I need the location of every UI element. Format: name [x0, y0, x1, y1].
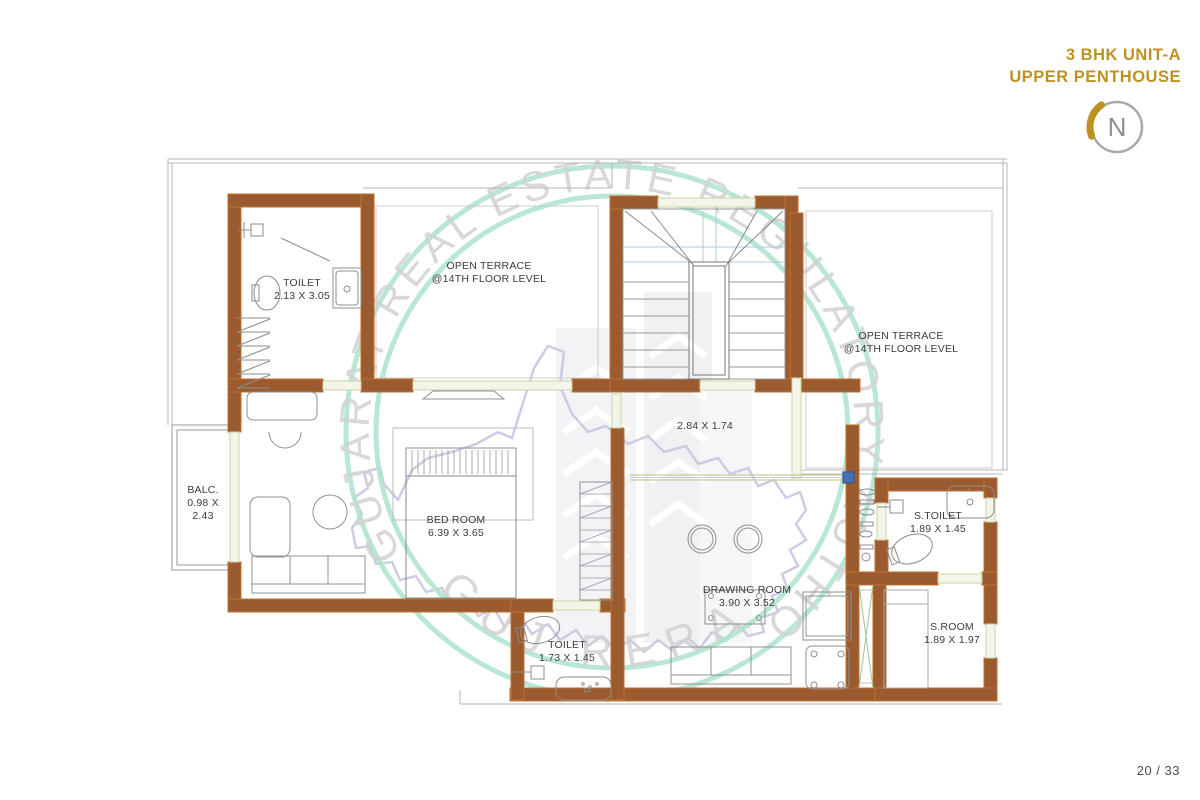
- floor-plan-page: GUJARAT REAL ESTATE REGULATORY AUTHORITY…: [0, 0, 1200, 800]
- room-dims: 2.84 X 1.74: [645, 420, 765, 433]
- unit-subtitle: UPPER PENTHOUSE: [1009, 66, 1181, 88]
- side-table-icon: [806, 646, 849, 689]
- room-dims: 1.73 X 1.45: [507, 652, 627, 665]
- desk-icon: [247, 392, 317, 448]
- room-name: S.ROOM: [892, 621, 1012, 634]
- room-name: DRAWING ROOM: [667, 584, 827, 597]
- room-label-toilet1: TOILET 2.13 X 3.05: [242, 277, 362, 303]
- room-dims: 0.98 X: [173, 497, 233, 510]
- north-indicator: N: [1086, 96, 1150, 160]
- room-label-passage: 2.84 X 1.74: [645, 420, 765, 433]
- floor-plan-drawing: GUJARAT REAL ESTATE REGULATORY AUTHORITY…: [0, 0, 1200, 800]
- room-dims: 3.90 X 3.52: [667, 597, 827, 610]
- room-label-drawing-room: DRAWING ROOM 3.90 X 3.52: [667, 584, 827, 610]
- room-label-s-room: S.ROOM 1.89 X 1.97: [892, 621, 1012, 647]
- room-label-toilet2: TOILET 1.73 X 1.45: [507, 639, 627, 665]
- column-marker: [843, 472, 854, 483]
- north-arc: [1090, 105, 1102, 136]
- room-dims: 1.89 X 1.45: [878, 523, 998, 536]
- page-indicator: 20 / 33: [1040, 763, 1180, 778]
- room-name: OPEN TERRACE: [801, 330, 1001, 343]
- unit-title: 3 BHK UNIT-A: [1009, 44, 1181, 66]
- round-table-icon: [313, 495, 347, 529]
- room-label-bedroom: BED ROOM 6.39 X 3.65: [396, 514, 516, 540]
- room-label-s-toilet: S.TOILET 1.89 X 1.45: [878, 510, 998, 536]
- room-dims: 2.43: [173, 510, 233, 523]
- ledge-hatch: [237, 318, 270, 388]
- room-dims: 2.13 X 3.05: [242, 290, 362, 303]
- room-label-terrace-right: OPEN TERRACE @14TH FLOOR LEVEL: [801, 330, 1001, 356]
- room-name: OPEN TERRACE: [389, 260, 589, 273]
- room-dims: 6.39 X 3.65: [396, 527, 516, 540]
- shelf-icon: [238, 222, 263, 238]
- shaft-hatch: [859, 585, 873, 688]
- french-window-sill: [423, 391, 504, 399]
- north-letter: N: [1108, 112, 1127, 142]
- room-dims: @14TH FLOOR LEVEL: [801, 343, 1001, 356]
- room-name: S.TOILET: [878, 510, 998, 523]
- room-dims: 1.89 X 1.97: [892, 634, 1012, 647]
- room-name: TOILET: [507, 639, 627, 652]
- door-swing-line: [281, 238, 330, 261]
- watermark-ring-text: GUJARAT REAL ESTATE REGULATORY AUTHORITY: [0, 0, 894, 653]
- chair-icon: [269, 432, 301, 448]
- room-name: BALC.: [173, 484, 233, 497]
- room-name: TOILET: [242, 277, 362, 290]
- room-name: BED ROOM: [396, 514, 516, 527]
- bed-platform: [393, 428, 533, 520]
- room-label-terrace-left: OPEN TERRACE @14TH FLOOR LEVEL: [389, 260, 589, 286]
- room-dims: @14TH FLOOR LEVEL: [389, 273, 589, 286]
- room-label-balcony: BALC. 0.98 X 2.43: [173, 484, 233, 523]
- title-block: 3 BHK UNIT-A UPPER PENTHOUSE: [1009, 44, 1181, 88]
